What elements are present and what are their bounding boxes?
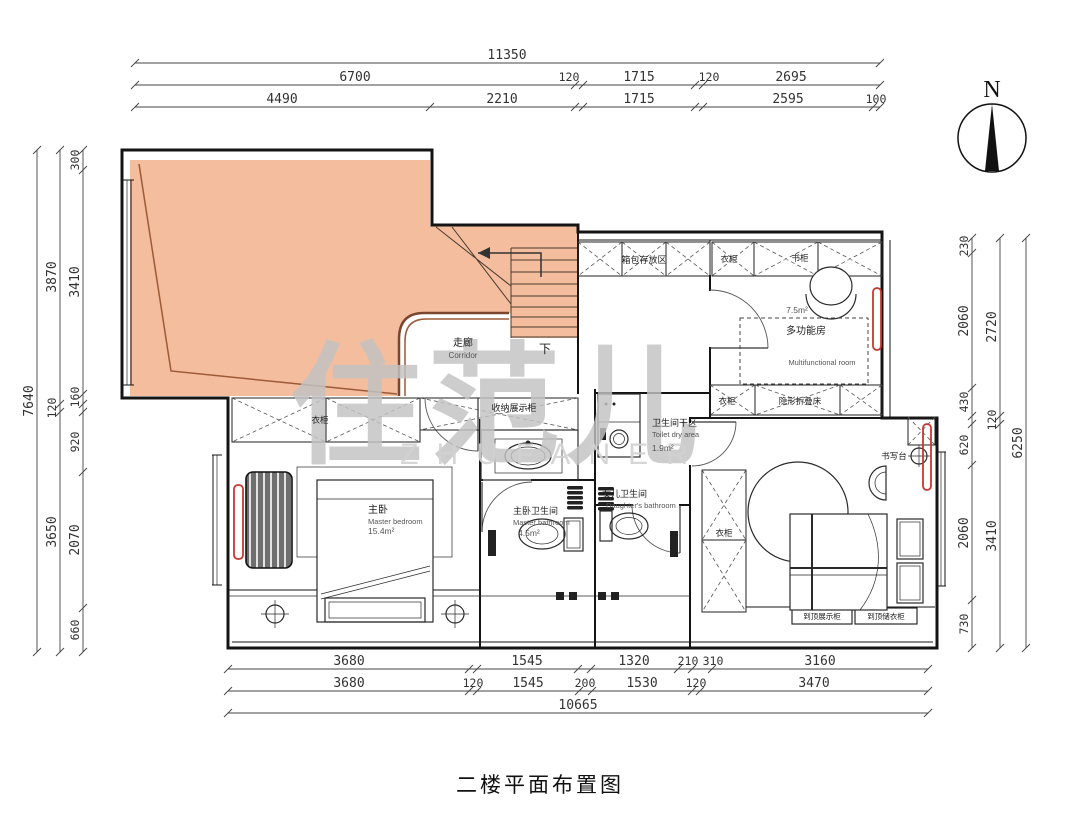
dim-label: 310 (703, 654, 724, 668)
mfr-door-arc (710, 290, 768, 348)
dim-right-outer: 6250 (1011, 234, 1030, 652)
north-label: N (983, 77, 1000, 103)
wardrobe-label: 衣柜 (718, 396, 736, 406)
luggage-cabinet-cell (666, 242, 710, 276)
page-title: 二楼平面布置图 (456, 774, 624, 797)
dim-label: 3410 (68, 266, 83, 297)
master-bath-label: 主卧卫生间 (513, 505, 558, 516)
dim-label: 3680 (333, 654, 364, 669)
column-symbol (441, 600, 469, 628)
north-arrow: N (958, 77, 1026, 172)
folding-bed-cell (840, 385, 882, 415)
shower-panel-icon (670, 531, 678, 557)
dim-bottom-row1: 3680 1545 1320 210 310 3160 (224, 654, 932, 673)
wardrobe-label: 衣柜 (715, 528, 733, 538)
dim-label: 10665 (558, 698, 597, 713)
dim-top-row2: 6700 120 1715 120 2695 (131, 70, 884, 89)
shower-track (556, 592, 564, 600)
dim-label: 620 (957, 435, 971, 456)
dim-label: 6700 (339, 70, 370, 85)
dim-label: 120 (686, 676, 707, 690)
dim-label: 1715 (623, 92, 654, 107)
dry-area-area-label: 1.9m² (652, 443, 674, 453)
dim-right-mid: 2720 120 3410 (985, 234, 1004, 652)
floor-plan-page: 住范儿 ZHUFANER 走廊 Corridor 下 箱包存放区 衣柜 书柜 衣… (0, 0, 1080, 816)
master-bedroom-label-en: Master bedroom (368, 517, 423, 526)
compass-needle-icon (985, 104, 999, 171)
dim-label: 430 (957, 392, 971, 413)
towel-radiator-icon (567, 486, 583, 510)
dim-bottom-row3: 10665 (224, 698, 932, 717)
dim-label: 200 (575, 676, 596, 690)
dim-label: 3870 (45, 261, 60, 292)
luggage-storage-label: 箱包存放区 (621, 254, 666, 265)
desk-label: 书写台 (881, 451, 907, 461)
mfr-chair-icon (810, 267, 852, 305)
corridor-label-en: Corridor (449, 351, 478, 360)
daughter-bed (790, 514, 887, 610)
shower-track (611, 592, 619, 600)
dim-label: 3650 (45, 516, 60, 547)
dim-label: 3680 (333, 676, 364, 691)
shower-track (598, 592, 606, 600)
dim-label: 230 (957, 236, 971, 257)
mfr-label: 多功能房 (786, 324, 826, 337)
daughter-wardrobe-cell (702, 540, 746, 612)
desk-stool-symbol (908, 445, 930, 467)
master-bedroom-area-label: 15.4m² (368, 526, 395, 536)
dim-label: 660 (68, 620, 82, 641)
dim-left-outer: 7640 (22, 146, 41, 656)
tag-wardrobe-label: 到顶储衣柜 (867, 611, 905, 621)
dim-label: 3160 (804, 654, 835, 669)
bedside-bench (246, 472, 292, 568)
dim-label: 120 (699, 70, 720, 84)
dim-top-row3: 4490 2210 1715 2595 100 (131, 92, 886, 111)
dim-label: 210 (678, 654, 699, 668)
dim-label: 2060 (957, 305, 972, 336)
shower-track (569, 592, 577, 600)
dim-label: 7640 (22, 385, 37, 416)
column-symbol (261, 600, 289, 628)
luggage-cabinet-cell (578, 242, 622, 276)
dim-label: 300 (68, 150, 82, 171)
dim-label: 1545 (512, 676, 543, 691)
dim-label: 2720 (985, 311, 1000, 342)
dim-label: 920 (68, 432, 82, 453)
dim-label: 120 (559, 70, 580, 84)
bedside-cabinet (897, 519, 923, 559)
stairs-down-label: 下 (539, 342, 551, 356)
dim-label: 3410 (985, 520, 1000, 551)
dim-label: 2210 (486, 92, 517, 107)
radiator-icon (873, 288, 881, 350)
dim-label: 11350 (487, 48, 526, 63)
dim-label: 120 (985, 410, 999, 431)
display-cabinet-label: 收纳展示柜 (491, 402, 536, 413)
dim-label: 2060 (957, 517, 972, 548)
dim-top-row1: 11350 (131, 48, 884, 67)
master-bath-area-label: 4.5m² (518, 528, 540, 538)
dim-label: 6250 (1011, 427, 1026, 458)
desk-chair-icon (869, 466, 886, 500)
wardrobe-label: 衣柜 (311, 415, 329, 425)
dim-label: 2070 (68, 524, 83, 555)
master-bath-label-en: Master bathroom (513, 518, 570, 527)
master-bedroom-label: 主卧 (368, 503, 388, 516)
master-bed (317, 480, 433, 622)
dim-label: 2695 (775, 70, 806, 85)
dim-label: 730 (957, 614, 971, 635)
dim-right-inner: 230 2060 430 620 2060 730 (957, 234, 976, 652)
dim-label: 160 (68, 387, 82, 408)
dim-label: 2595 (772, 92, 803, 107)
mfr-label-en: Multifunctional room (788, 358, 855, 367)
shower-panel-icon (488, 530, 496, 556)
bookcase-label: 书柜 (791, 253, 809, 263)
mfr-area-label: 7.5m² (786, 305, 808, 315)
dry-area-label: 卫生间干区 (652, 417, 697, 428)
wardrobe-label: 衣柜 (720, 254, 738, 264)
floor-plan-canvas: 住范儿 ZHUFANER 走廊 Corridor 下 箱包存放区 衣柜 书柜 衣… (0, 0, 1080, 816)
dim-label: 1715 (623, 70, 654, 85)
toilet-icon (600, 511, 648, 541)
dim-label: 1545 (511, 654, 542, 669)
dim-label: 1320 (618, 654, 649, 669)
folding-bed-label: 隐形折叠床 (779, 396, 822, 406)
bedside-cabinet (897, 563, 923, 603)
daughter-bath-label: 女儿卫生间 (602, 488, 647, 499)
dim-left-inner: 300 3410 160 920 2070 660 (68, 146, 87, 656)
dim-bottom-row2: 3680 120 1545 200 1530 120 3470 (224, 676, 932, 695)
dim-label: 100 (866, 92, 887, 106)
radiator-icon (234, 485, 243, 559)
dry-area-label-en: Toilet dry area (652, 430, 700, 439)
corridor-label: 走廊 (453, 336, 473, 349)
tag-display-label: 到顶展示柜 (803, 611, 841, 621)
daughter-bath-label-en: Daughter's bathroom (606, 501, 676, 510)
dim-label: 4490 (266, 92, 297, 107)
dim-label: 120 (45, 398, 59, 419)
dim-label: 120 (463, 676, 484, 690)
dim-label: 3470 (798, 676, 829, 691)
dim-left-mid: 3870 120 3650 (45, 146, 64, 656)
dim-label: 1530 (626, 676, 657, 691)
